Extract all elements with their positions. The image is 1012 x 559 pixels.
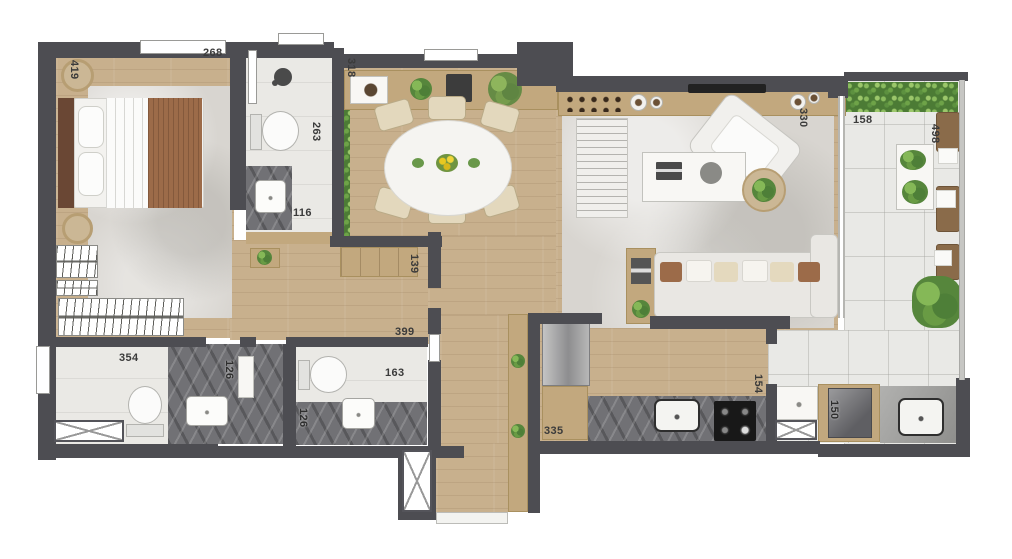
bath2-counter <box>168 344 283 444</box>
sofa-side-plant <box>632 300 650 318</box>
slatted-cabinet <box>576 118 628 218</box>
credenza-tray <box>808 92 820 104</box>
bed-duvet <box>106 98 148 208</box>
sideboard-tray <box>350 76 388 104</box>
tv <box>688 84 766 93</box>
toilet-tank <box>250 114 262 150</box>
bath1-threshold <box>246 232 332 244</box>
toilet-tank <box>126 424 164 437</box>
table-centerpiece-flowers <box>436 154 458 172</box>
bath2-window <box>36 346 50 394</box>
toilet <box>310 356 347 393</box>
side-table-plant <box>752 178 776 202</box>
dim-bath2-counter: 126 <box>223 360 235 380</box>
wall-kitchen-left <box>528 313 540 513</box>
kitchen-sink <box>654 399 700 432</box>
shower-head-icon <box>274 68 292 86</box>
balcony-sliding-door <box>838 96 845 318</box>
dim-wc-counter: 126 <box>297 408 309 428</box>
lounge-towel <box>934 250 952 266</box>
sofa-pillow <box>660 262 682 282</box>
dim-balcony-length: 498 <box>929 124 941 144</box>
balcony-railing <box>959 80 965 380</box>
bath1-window <box>278 33 324 45</box>
wall-hall-divider <box>428 360 441 446</box>
dim-dining-width: 318 <box>345 58 357 78</box>
toilet <box>128 386 162 424</box>
laundry-sink <box>898 398 944 436</box>
lounge-towel <box>938 148 958 164</box>
wall-hall-divider <box>428 308 441 334</box>
duct-shaft <box>402 450 432 512</box>
sofa-pillow <box>798 262 820 282</box>
shower-bench <box>238 356 254 398</box>
dim-bedroom-width: 419 <box>68 60 80 80</box>
dim-bedroom-length: 268 <box>203 47 223 59</box>
wardrobe-hanger-rack <box>56 245 98 278</box>
bar-bottles <box>564 94 626 112</box>
duct-shaft <box>54 420 124 442</box>
dim-living-width: 330 <box>797 108 809 128</box>
bed-headboard <box>58 98 74 208</box>
dim-bath2-width: 354 <box>119 352 139 364</box>
dim-kitchen-depth: 154 <box>752 374 764 394</box>
lounge-towel <box>936 190 956 208</box>
table-plate <box>468 158 480 168</box>
entry-threshold <box>436 512 508 524</box>
wall-bath2-wc <box>283 344 296 446</box>
refrigerator <box>542 322 590 386</box>
balcony-bush <box>912 276 962 328</box>
dim-balcony-width: 158 <box>853 114 873 126</box>
wall-bottom-left <box>38 444 218 458</box>
credenza-tray <box>630 94 647 111</box>
sofa-pillow <box>686 260 712 282</box>
wall-right-service <box>956 378 970 457</box>
sofa-pillow <box>714 262 738 282</box>
hall-cabinet <box>340 247 418 277</box>
dim-wc-width: 163 <box>385 367 405 379</box>
hall-mat-plant <box>257 250 272 265</box>
wall-living-corner <box>828 76 848 98</box>
wall-bedroom-bath1 <box>230 42 246 210</box>
wardrobe-hanger-rack <box>56 280 98 296</box>
service-cabinet-sink <box>776 386 818 420</box>
credenza-tray <box>650 96 663 109</box>
wc-door <box>429 334 440 362</box>
toilet <box>262 111 299 151</box>
wall-bottom-service <box>818 444 970 457</box>
toilet-tank <box>298 360 310 390</box>
wall-hall-bottom <box>286 337 428 347</box>
table-plate <box>412 158 424 168</box>
wall-kitchen-balcony <box>766 318 777 344</box>
wc-washbasin <box>342 398 375 429</box>
wall-hall-divider <box>428 232 441 288</box>
dim-bath1-length: 263 <box>310 122 322 142</box>
sofa-pillow <box>770 262 794 282</box>
balcony-table-plant <box>902 180 928 204</box>
balcony-table-plant <box>900 150 926 170</box>
entry-cabinet-plant <box>511 354 525 368</box>
bath2-washbasin <box>186 396 228 426</box>
wall-dining-hall <box>330 236 442 247</box>
bed-pillow <box>78 152 104 196</box>
coffee-table-books <box>656 162 682 180</box>
entry-tall-cabinet <box>508 314 528 512</box>
wardrobe-hanger-rack <box>58 298 184 336</box>
dining-window <box>424 49 478 61</box>
coffee-table-decor <box>700 162 722 184</box>
wall-door-jamb <box>240 337 256 347</box>
shower-glass-partition <box>248 50 257 104</box>
dim-laundry-width: 150 <box>828 400 840 420</box>
cooktop <box>714 401 756 441</box>
duct-shaft <box>775 420 817 440</box>
floor-plan-canvas: 419 268 263 116 318 139 399 354 126 126 … <box>0 0 1012 559</box>
wall-bottom-kitchen <box>540 441 820 454</box>
dim-hall-width: 139 <box>408 254 420 274</box>
wall-hall-bottom <box>56 337 206 347</box>
dim-bath1-width: 116 <box>293 207 312 219</box>
entry-cabinet-plant <box>511 424 525 438</box>
wall-left <box>38 42 56 460</box>
bath1-washbasin <box>255 180 286 213</box>
dim-hall-length: 399 <box>395 326 415 338</box>
wall-bath1-dining <box>332 48 344 240</box>
bed-throw <box>148 98 202 208</box>
sofa-pillow <box>742 260 768 282</box>
sofa-side-books <box>631 258 651 284</box>
balcony-hedge <box>846 82 958 112</box>
bed-pillow <box>78 106 104 148</box>
wall-top-balcony <box>844 72 968 81</box>
nightstand-pouf <box>62 213 93 244</box>
dining-chair <box>428 96 466 120</box>
dim-kitchen-width: 335 <box>544 425 564 437</box>
